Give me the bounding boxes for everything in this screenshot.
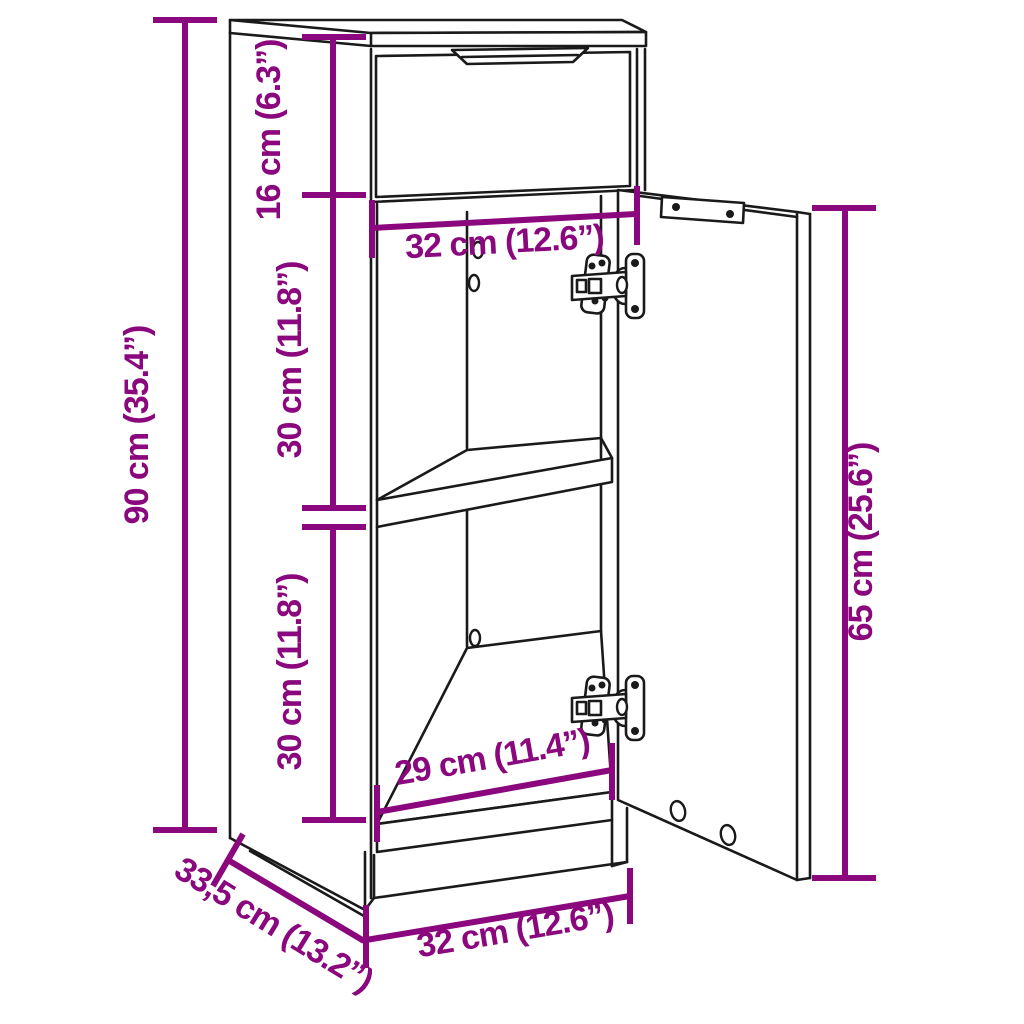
dim-label-door-height: 65 cm (25.6”) [842,443,880,642]
dim-label-total-height: 90 cm (35.4”) [118,326,156,525]
dim-total-height: 90 cm (35.4”) [118,20,217,830]
dim-door-height: 65 cm (25.6”) [812,208,880,878]
shelf-pin-hole [469,275,479,291]
dim-drawer-section: 16 cm (6.3”) [250,37,366,220]
dim-label-total-width: 32 cm (12.6”) [414,895,616,965]
cabinet-top-panel [230,20,646,46]
dim-lower-compartment: 30 cm (11.8”) [271,527,366,820]
dim-upper-compartment: 30 cm (11.8”) [271,195,366,508]
middle-shelf [377,438,612,527]
dim-total-width: 32 cm (12.6”) [366,868,630,968]
drawer-front [376,48,630,197]
dim-label-lower-compartment: 30 cm (11.8”) [271,574,309,771]
open-door [618,190,810,880]
cabinet-diagram-canvas: 90 cm (35.4”) 16 cm (6.3”) 30 cm (11.8”)… [0,0,1024,1024]
dim-label-drawer-section: 16 cm (6.3”) [250,40,288,221]
top-hinge [572,254,644,318]
dimension-diagram: 90 cm (35.4”) 16 cm (6.3”) 30 cm (11.8”)… [0,0,1024,1024]
dim-inner-width-top: 32 cm (12.6”) [372,186,637,266]
dim-label-upper-compartment: 30 cm (11.8”) [271,262,309,459]
dim-label-depth: 33,5 cm (13.2”) [168,850,380,1000]
dim-depth: 33,5 cm (13.2”) [168,834,380,1000]
shelf-pin-hole [470,630,480,646]
cabinet-line-art [230,20,810,916]
